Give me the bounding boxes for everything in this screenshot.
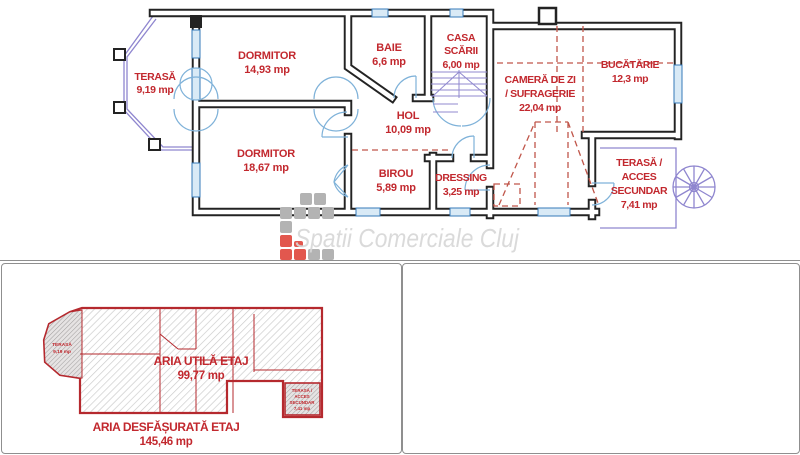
terasa-acces-line2: ACCES bbox=[622, 171, 657, 183]
summary-terasa-name: TERASĂ bbox=[52, 341, 72, 348]
aria-desfasurata-value: 145,46 mp bbox=[140, 436, 193, 448]
terasa-acces-line3: SECUNDAR bbox=[611, 185, 668, 197]
dressing-name: DRESSING bbox=[435, 172, 487, 184]
floor-plan-page: TERASĂ 9,19 mp DORMITOR 14,93 mp BAIE 6,… bbox=[0, 0, 800, 455]
terasa-acces-line1: TERASĂ / bbox=[616, 156, 662, 169]
summary-terasa-acces-line3: SECUNDAR bbox=[290, 400, 316, 405]
camera-zi-line2: / SUFRAGERIE bbox=[505, 88, 575, 100]
summary-terasa-area: 9,19 mp bbox=[53, 349, 71, 355]
terasa-name: TERASĂ bbox=[134, 70, 176, 83]
dormitor1-area: 14,93 mp bbox=[244, 64, 290, 76]
aria-utila-value: 99,77 mp bbox=[178, 370, 225, 382]
bucatarie-area: 12,3 mp bbox=[612, 73, 648, 85]
aria-utila-label: ARIA UTILĂ ETAJ bbox=[154, 353, 249, 368]
casa-scarii-line1: CASA bbox=[447, 32, 476, 44]
birou-area: 5,89 mp bbox=[376, 182, 416, 194]
upper-plan: TERASĂ 9,19 mp DORMITOR 14,93 mp BAIE 6,… bbox=[114, 8, 715, 228]
summary-terasa-acces-area: 7,41 mp bbox=[294, 406, 311, 411]
dormitor2-name: DORMITOR bbox=[237, 148, 295, 160]
baie-name: BAIE bbox=[376, 42, 401, 54]
baie-area: 6,6 mp bbox=[372, 56, 406, 68]
terrace-bay-outline bbox=[114, 16, 194, 150]
watermark-text: Spatii Comerciale Cluj bbox=[295, 223, 520, 253]
bucatarie-name: BUCĂTĂRIE bbox=[601, 58, 660, 71]
staircase bbox=[431, 70, 487, 112]
summary-terasa-acces-line1: TERASĂ / bbox=[292, 388, 313, 393]
terasa-area: 9,19 mp bbox=[136, 84, 173, 96]
birou-name: BIROU bbox=[379, 168, 414, 180]
terasa-acces-area: 7,41 mp bbox=[621, 199, 657, 211]
dormitor2-area: 18,67 mp bbox=[243, 162, 289, 174]
watermark: Spatii Comerciale Cluj bbox=[280, 193, 520, 260]
dressing-area: 3,25 mp bbox=[443, 186, 479, 198]
dormitor1-name: DORMITOR bbox=[238, 50, 296, 62]
casa-scarii-area: 6,00 mp bbox=[442, 59, 479, 71]
summary-terasa-acces-line2: ACCES bbox=[294, 394, 309, 399]
aria-desfasurata-label: ARIA DESFĂȘURATĂ ETAJ bbox=[93, 419, 240, 434]
hol-name: HOL bbox=[397, 110, 420, 122]
camera-zi-line1: CAMERĂ DE ZI bbox=[504, 73, 576, 86]
summary-plan: TERASĂ 9,19 mp ARIA UTILĂ ETAJ 99,77 mp … bbox=[44, 308, 322, 448]
floor-plan-drawing: TERASĂ 9,19 mp DORMITOR 14,93 mp BAIE 6,… bbox=[0, 0, 800, 455]
casa-scarii-line2: SCĂRII bbox=[444, 44, 478, 57]
hol-area: 10,09 mp bbox=[385, 124, 431, 136]
camera-zi-area: 22,04 mp bbox=[519, 102, 561, 114]
